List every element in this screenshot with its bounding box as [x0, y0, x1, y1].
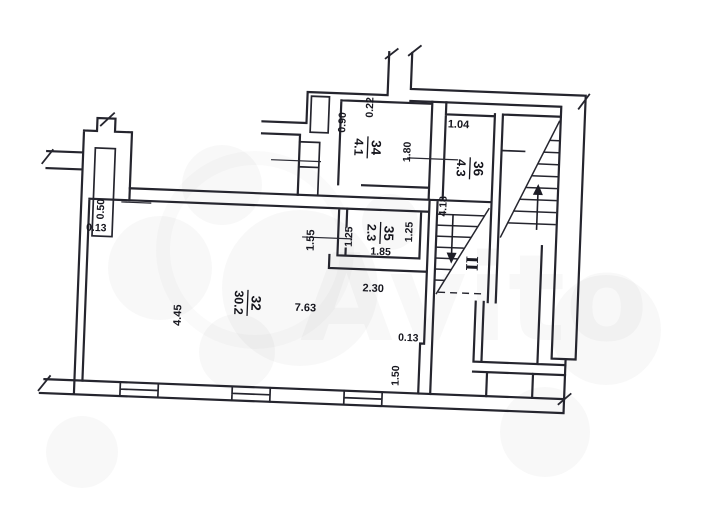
floor-plan: Avito II — [0, 0, 720, 514]
stair-arrow-up-head — [533, 184, 543, 195]
room-label-34: 34 4.1 — [351, 136, 384, 159]
dim-room34-top: 0.22 — [364, 97, 377, 118]
dim-corridor-left: 1.55 — [305, 229, 318, 251]
room-35-number: 35 — [381, 225, 397, 241]
room-36-number: 36 — [471, 161, 487, 177]
room-36-area: 4.3 — [454, 159, 469, 177]
dim-room32-width: 4.45 — [172, 304, 185, 326]
room-32-number: 32 — [248, 295, 264, 311]
dim-room34-niche: 0.90 — [336, 112, 349, 133]
room-34-area: 4.1 — [351, 138, 366, 156]
dim-room35-right: 1.25 — [403, 221, 416, 242]
dim-stair-run: 4.18 — [437, 196, 450, 217]
dim-right-wall-step: 0.13 — [398, 332, 419, 345]
dim-right-wall-bottom: 1.50 — [389, 365, 402, 386]
floor-plan-scan: Avito II — [0, 0, 720, 514]
dim-left-wall-step: 0.13 — [86, 222, 107, 235]
vent-shaft — [310, 96, 329, 133]
dim-room34-door: 1.80 — [401, 141, 414, 162]
room-35-area: 2.3 — [364, 224, 379, 242]
stair-landing-edge — [502, 151, 525, 152]
stair-flight-label: II — [462, 256, 482, 272]
dim-room35-left: 1.25 — [343, 226, 356, 247]
stair-stringer-upper — [500, 119, 560, 240]
dim-room32-top-right: 2.30 — [362, 282, 384, 295]
room-34-number: 34 — [368, 140, 384, 156]
dim-room32-length: 7.63 — [294, 302, 316, 315]
room-label-36: 36 4.3 — [453, 157, 486, 180]
dim-left-chimney-offset: 0.50 — [95, 199, 108, 220]
dim-room36-top: 1.04 — [448, 118, 471, 131]
dim-room35-bottom: 1.85 — [370, 246, 391, 259]
room-32-area: 30.2 — [231, 290, 246, 315]
